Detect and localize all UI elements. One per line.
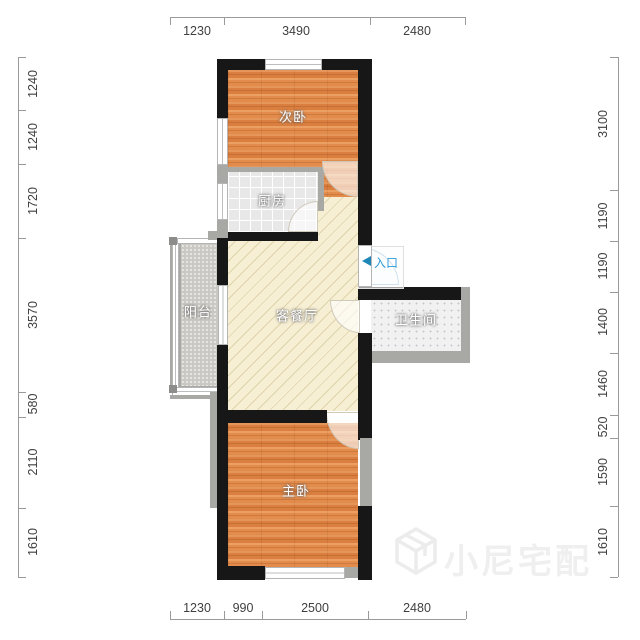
dim-label: 1190 xyxy=(596,253,610,280)
dim-tick xyxy=(368,611,369,619)
dim-tick xyxy=(18,417,26,418)
dim-label: 990 xyxy=(233,601,254,615)
dim-label: 2500 xyxy=(301,601,329,615)
watermark-logo-icon xyxy=(392,526,440,576)
room-label-balcony: 阳台 xyxy=(184,302,212,321)
dim-line-left xyxy=(18,57,19,577)
entrance-label: 入口 xyxy=(374,254,398,271)
dim-label: 1190 xyxy=(596,203,610,230)
room-label-kitchen: 厨房 xyxy=(258,191,286,210)
wall-segment xyxy=(217,165,228,183)
dim-tick xyxy=(18,392,26,393)
wall-segment xyxy=(210,392,217,508)
wall-segment xyxy=(360,438,372,506)
dim-label: 580 xyxy=(26,394,40,415)
wall-segment xyxy=(358,410,372,440)
wall-segment xyxy=(318,167,324,211)
dim-label: 2480 xyxy=(403,601,431,615)
dim-tick xyxy=(610,577,618,578)
wall-segment xyxy=(217,220,228,238)
window xyxy=(217,183,228,220)
dim-tick xyxy=(18,110,26,111)
dim-label: 1230 xyxy=(183,601,211,615)
dim-label: 1400 xyxy=(596,308,610,336)
wall-segment xyxy=(217,566,265,580)
dim-tick xyxy=(224,611,225,619)
window xyxy=(172,243,179,389)
room-label-bathroom: 卫生间 xyxy=(395,310,437,329)
wall-segment xyxy=(358,59,372,245)
watermark-text: 小尼宅配 xyxy=(444,534,592,583)
dim-tick xyxy=(18,57,26,58)
dim-label: 520 xyxy=(596,417,610,438)
dim-label: 3490 xyxy=(282,24,310,38)
dim-tick xyxy=(610,438,618,439)
window xyxy=(218,285,228,345)
balcony-corner-post xyxy=(169,385,177,393)
wall-segment xyxy=(358,506,372,580)
wall-segment xyxy=(358,333,372,412)
dim-label: 3570 xyxy=(26,301,40,329)
wall-segment xyxy=(208,231,217,240)
balcony-corner-post xyxy=(169,237,177,245)
wall-segment xyxy=(217,410,327,423)
room-label-master-bedroom: 主卧 xyxy=(282,481,310,500)
dim-tick xyxy=(18,508,26,509)
dim-tick xyxy=(18,577,26,578)
dim-label: 1240 xyxy=(26,70,40,98)
entrance-arrow-icon xyxy=(362,256,371,266)
dim-tick xyxy=(610,353,618,354)
dim-tick xyxy=(466,611,467,619)
dim-line-right xyxy=(618,57,619,577)
room-label-secondary-bedroom: 次卧 xyxy=(279,107,307,126)
dim-tick xyxy=(610,241,618,242)
dim-tick xyxy=(610,57,618,58)
wall-segment xyxy=(345,567,358,578)
dim-tick xyxy=(370,17,371,25)
dim-label: 1610 xyxy=(596,528,610,556)
window xyxy=(265,59,322,70)
dim-tick xyxy=(610,415,618,416)
dim-label: 1720 xyxy=(26,187,40,215)
dim-label: 1240 xyxy=(26,123,40,151)
room-label-living-dining: 客餐厅 xyxy=(276,306,318,325)
entrance-opening xyxy=(358,245,372,287)
dim-label: 2110 xyxy=(26,449,40,476)
dim-label: 2480 xyxy=(403,24,431,38)
dim-tick xyxy=(610,506,618,507)
dim-tick xyxy=(18,164,26,165)
dim-tick xyxy=(224,17,225,25)
window xyxy=(265,567,345,579)
dim-tick xyxy=(610,292,618,293)
dim-line-top xyxy=(170,17,466,18)
dim-tick xyxy=(170,611,171,619)
wall-segment xyxy=(217,238,228,285)
wall-segment xyxy=(217,423,228,580)
dim-tick xyxy=(610,190,618,191)
dim-label: 1460 xyxy=(596,370,610,398)
dim-tick xyxy=(465,17,466,25)
dim-tick xyxy=(262,611,263,619)
dim-label: 1230 xyxy=(183,24,211,38)
wall-segment xyxy=(217,59,228,118)
dim-tick xyxy=(18,238,26,239)
dim-label: 3100 xyxy=(596,110,610,138)
dim-line-bottom xyxy=(170,619,466,620)
wall-segment xyxy=(217,232,318,241)
dim-label: 1610 xyxy=(26,528,40,556)
dim-tick xyxy=(170,17,171,25)
floor-plan-canvas: 1230 3490 2480 1230 990 2500 2480 1240 1… xyxy=(0,0,640,640)
dim-label: 1590 xyxy=(596,458,610,486)
wall-segment xyxy=(368,351,470,363)
window xyxy=(217,118,228,165)
